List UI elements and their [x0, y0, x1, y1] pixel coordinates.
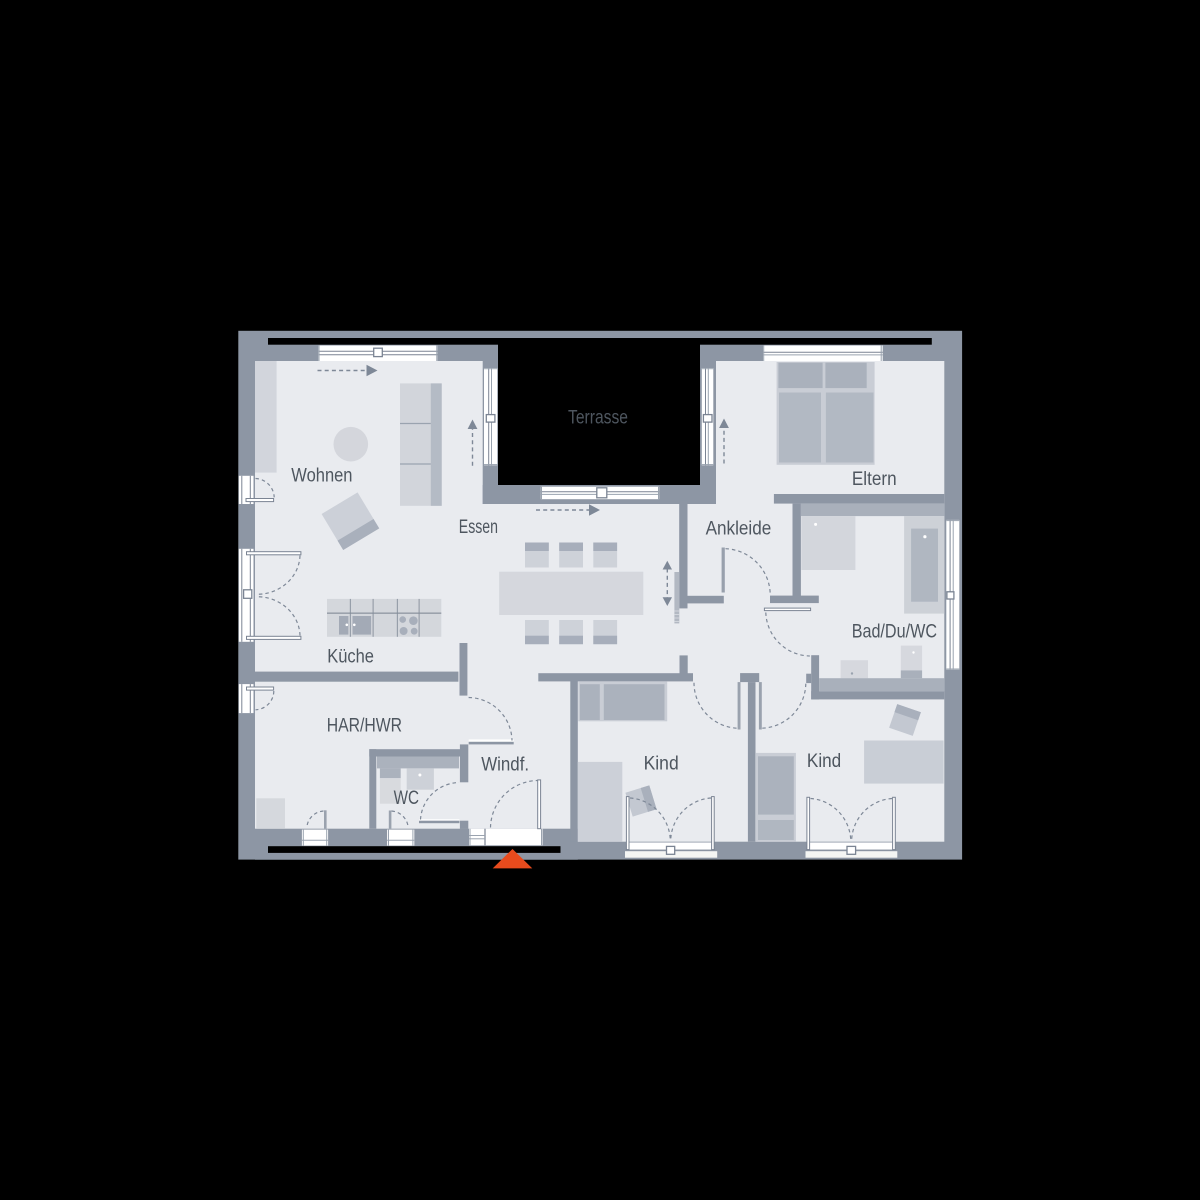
svg-text:Bad/Du/WC: Bad/Du/WC [852, 621, 937, 643]
svg-text:Essen: Essen [459, 516, 498, 538]
svg-text:HAR/HWR: HAR/HWR [327, 715, 402, 737]
svg-text:Kind: Kind [807, 750, 841, 772]
svg-text:Terrasse: Terrasse [568, 407, 628, 429]
svg-text:WC: WC [394, 787, 419, 809]
svg-text:Wohnen: Wohnen [291, 465, 352, 487]
svg-text:Windf.: Windf. [481, 753, 529, 775]
svg-text:Kind: Kind [644, 753, 679, 775]
svg-text:Ankleide: Ankleide [706, 517, 772, 539]
svg-text:Küche: Küche [327, 645, 374, 667]
svg-text:Eltern: Eltern [852, 468, 897, 490]
